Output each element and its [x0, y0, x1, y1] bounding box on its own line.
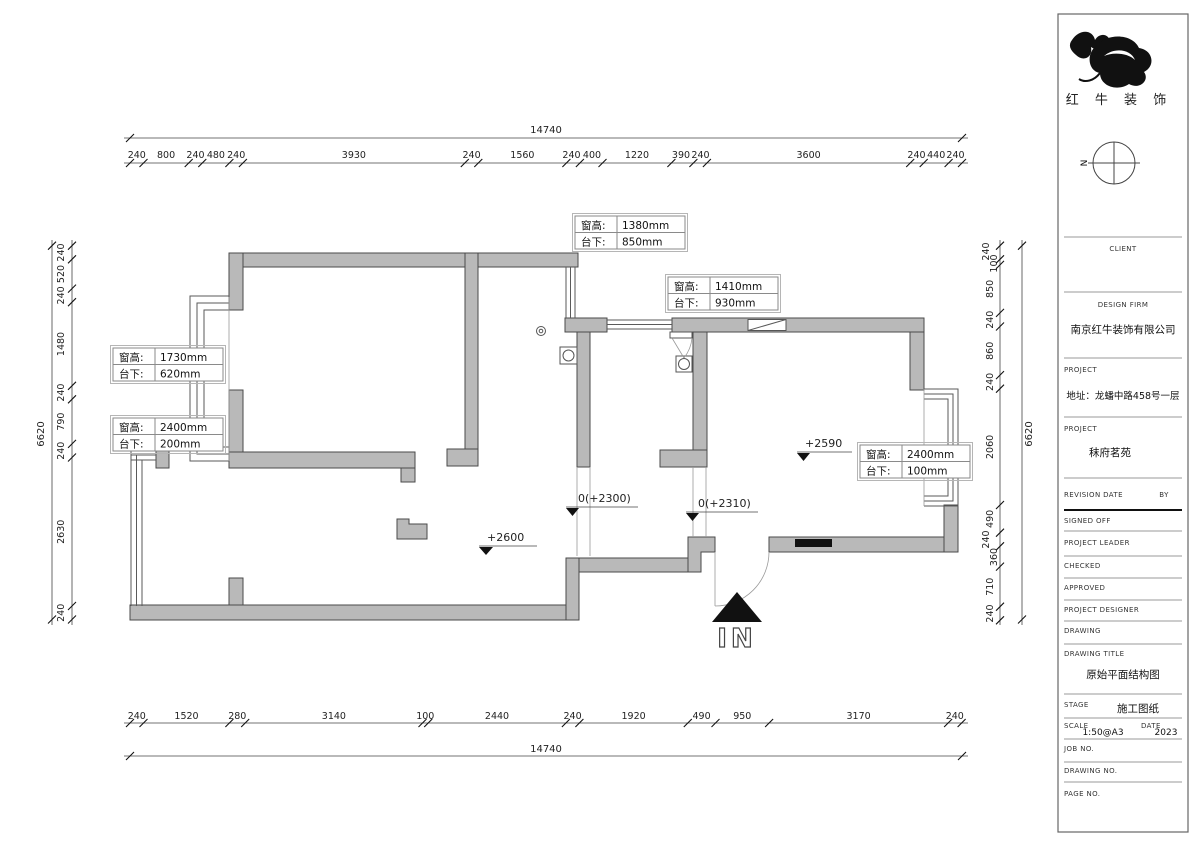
dim-value: 3930 — [342, 150, 366, 161]
signed-off-label: SIGNED OFF — [1064, 517, 1111, 525]
sill-value: 100mm — [907, 466, 948, 478]
sill-value: 930mm — [715, 298, 756, 310]
dim-value: 240 — [56, 384, 67, 402]
revision-label: REVISION — [1064, 491, 1101, 499]
page-no-label: PAGE NO. — [1064, 790, 1100, 798]
design-firm-label: DESIGN FIRM — [1098, 301, 1149, 309]
dim-value: 1520 — [174, 711, 198, 722]
dim-value: 3170 — [847, 711, 871, 722]
dim-value: 100 — [416, 711, 434, 722]
wall — [672, 318, 924, 332]
dim-value: 1480 — [56, 332, 67, 356]
dim-value: 480 — [207, 150, 225, 161]
stage-value: 施工图纸 — [1117, 702, 1159, 715]
wall — [229, 253, 243, 310]
elevation-label: +2590 — [805, 437, 842, 450]
wall — [130, 605, 579, 620]
sill-value: 620mm — [160, 369, 201, 381]
elevation-label: 0(+2310) — [698, 497, 751, 510]
stage-label: STAGE — [1064, 701, 1089, 709]
dim-value: 2060 — [985, 435, 996, 459]
wall — [447, 449, 478, 466]
dim-value: 240 — [186, 150, 204, 161]
project-name: 秣府茗苑 — [1089, 446, 1131, 459]
window-value: 2400mm — [907, 449, 954, 461]
window-value: 1410mm — [715, 281, 762, 293]
job-no-label: JOB NO. — [1063, 745, 1094, 753]
dim-value: 800 — [157, 150, 175, 161]
dim-value: 950 — [733, 711, 751, 722]
scale-value: 1:50@A3 — [1082, 728, 1123, 738]
meter-box — [679, 359, 690, 370]
dim-value: 240 — [562, 150, 580, 161]
entrance-label: IN — [717, 624, 756, 654]
project-label: PROJECT — [1064, 425, 1097, 433]
window-label-box: 窗高: 1380mm 台下: 850mm — [573, 214, 688, 252]
dim-value: 240 — [691, 150, 709, 161]
dim-value: 710 — [985, 578, 996, 596]
window-label: 窗高: — [866, 448, 891, 461]
title-block: 红 牛 装 饰 N CL — [1058, 14, 1188, 832]
wall — [401, 468, 415, 482]
dim-value: 240 — [128, 150, 146, 161]
drawing-title-value: 原始平面结构图 — [1086, 668, 1160, 681]
dim-value: 240 — [128, 711, 146, 722]
meter-box — [563, 350, 574, 361]
window-label: 窗高: — [674, 280, 699, 293]
window-label-box: 窗高: 2400mm 台下: 200mm — [111, 416, 226, 454]
project-leader-label: PROJECT LEADER — [1064, 539, 1130, 547]
dim-value: 240 — [56, 243, 67, 261]
dim-value: 3600 — [797, 150, 821, 161]
dim-value: 440 — [927, 150, 945, 161]
company-name: 红 牛 装 饰 — [1066, 92, 1172, 108]
compass-north-label: N — [1080, 160, 1090, 167]
wall — [465, 253, 478, 451]
dim-total-right: 6620 — [1024, 421, 1035, 446]
design-firm-value: 南京红牛装饰有限公司 — [1071, 323, 1176, 336]
project-designer-label: PROJECT DESIGNER — [1064, 606, 1139, 614]
dim-value: 240 — [985, 311, 996, 329]
sill-value: 850mm — [622, 237, 663, 249]
dim-value: 490 — [693, 711, 711, 722]
dim-value: 360 — [989, 548, 1000, 566]
dim-value: 860 — [985, 342, 996, 360]
dim-value: 280 — [228, 711, 246, 722]
elevation-label: +2600 — [487, 531, 524, 544]
dim-value: 240 — [907, 150, 925, 161]
dim-total-bottom: 14740 — [530, 744, 562, 755]
window-label-box: 窗高: 1730mm 台下: 620mm — [111, 346, 226, 384]
wall — [910, 332, 924, 390]
dim-value: 240 — [946, 150, 964, 161]
project-label: PROJECT — [1064, 366, 1097, 374]
wall — [565, 318, 607, 332]
checked-label: CHECKED — [1064, 562, 1101, 570]
dim-value: 520 — [56, 265, 67, 283]
wall — [577, 332, 590, 467]
dim-value: 240 — [463, 150, 481, 161]
dim-value: 1560 — [510, 150, 534, 161]
dim-value: 240 — [946, 711, 964, 722]
dim-value: 240 — [56, 442, 67, 460]
sill-value: 200mm — [160, 439, 201, 451]
floor-plan-page: 14740 14740 6620 6620 240 800 240 480 24… — [0, 0, 1200, 856]
wall — [660, 450, 707, 467]
dim-value: 2440 — [485, 711, 509, 722]
sill-label: 台下: — [581, 236, 606, 249]
sill-label: 台下: — [866, 465, 891, 478]
window-label-box: 窗高: 1410mm 台下: 930mm — [666, 275, 781, 313]
sill-label: 台下: — [119, 438, 144, 451]
date-value: 2023 — [1155, 728, 1178, 738]
drawing-title-label: DRAWING TITLE — [1064, 650, 1124, 658]
wall — [579, 558, 688, 572]
dim-value: 240 — [985, 604, 996, 622]
dim-value: 2630 — [56, 520, 67, 544]
drawing-no-label: DRAWING NO. — [1064, 767, 1117, 775]
dim-value: 240 — [564, 711, 582, 722]
dim-value: 240 — [227, 150, 245, 161]
dim-value: 1920 — [622, 711, 646, 722]
dim-value: 790 — [56, 413, 67, 431]
wall — [229, 452, 415, 468]
window-value: 1380mm — [622, 220, 669, 232]
dim-value: 240 — [981, 530, 992, 548]
window-label: 窗高: — [119, 421, 144, 434]
sill-label: 台下: — [119, 368, 144, 381]
elevation-label: 0(+2300) — [578, 492, 631, 505]
window-label: 窗高: — [119, 351, 144, 364]
floor-plan-drawing: 14740 14740 6620 6620 240 800 240 480 24… — [0, 0, 1200, 856]
dim-value: 3140 — [322, 711, 346, 722]
window-label-box: 窗高: 2400mm 台下: 100mm — [858, 443, 973, 481]
dim-value: 240 — [56, 604, 67, 622]
wall — [229, 253, 578, 267]
wall — [566, 558, 579, 620]
approved-label: APPROVED — [1064, 584, 1105, 592]
drawing-label: DRAWING — [1064, 627, 1101, 635]
dim-value: 390 — [672, 150, 690, 161]
dim-value: 400 — [583, 150, 601, 161]
dim-value: 850 — [985, 280, 996, 298]
sill-label: 台下: — [674, 297, 699, 310]
dim-value: 490 — [985, 510, 996, 528]
window-value: 1730mm — [160, 352, 207, 364]
dim-value: 240 — [985, 373, 996, 391]
window-value: 2400mm — [160, 422, 207, 434]
dim-value: 100 — [989, 254, 1000, 272]
wall — [693, 332, 707, 453]
ceiling-fixture — [539, 329, 543, 333]
project-address: 地址：龙蟠中路458号一层 — [1066, 390, 1179, 402]
cabinet — [670, 332, 692, 338]
radiator — [795, 539, 832, 547]
dim-value: 240 — [56, 286, 67, 304]
wall — [944, 505, 958, 552]
by-label: BY — [1159, 491, 1169, 499]
client-label: CLIENT — [1109, 245, 1137, 253]
date-label: DATE — [1103, 491, 1123, 499]
dim-value: 1220 — [625, 150, 649, 161]
window-label: 窗高: — [581, 219, 606, 232]
dim-total-top: 14740 — [530, 125, 562, 136]
dim-total-left: 6620 — [36, 421, 47, 446]
